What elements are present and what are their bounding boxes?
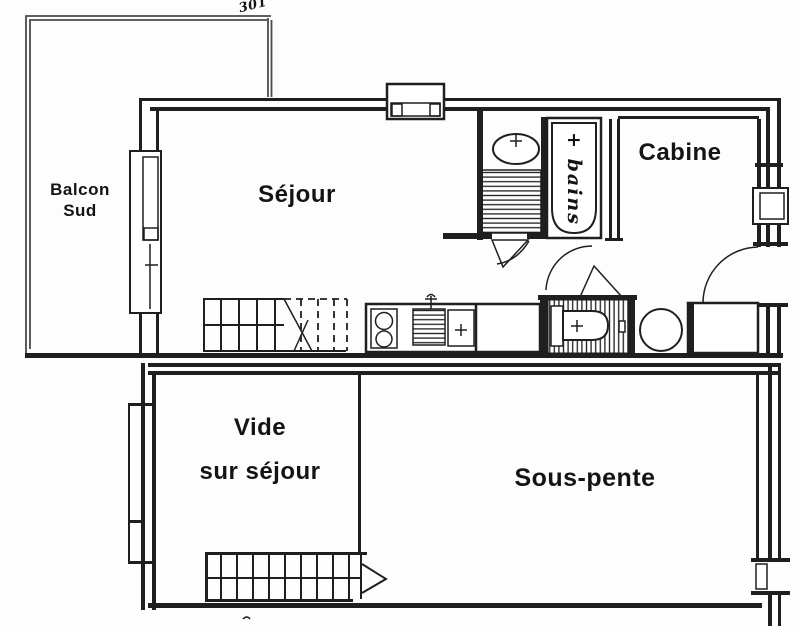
shower-hatch bbox=[482, 170, 541, 233]
void-label: Vide sur séjour bbox=[150, 414, 370, 486]
cabin-window bbox=[753, 188, 788, 224]
sink bbox=[448, 310, 474, 346]
balcony-door-window bbox=[130, 151, 161, 313]
void-label-line2: sur séjour bbox=[150, 458, 370, 486]
cabin-wall bbox=[605, 119, 623, 241]
cabin-door bbox=[546, 246, 622, 297]
wc-area bbox=[538, 295, 637, 355]
balcony-label-line1: Balcon bbox=[28, 179, 132, 200]
balcony-label-line2: Sud bbox=[28, 200, 132, 221]
under-slope-label: Sous-pente bbox=[440, 464, 730, 493]
bath-label: + bains bbox=[553, 124, 595, 234]
toilet bbox=[563, 311, 608, 340]
cabin-label: Cabine bbox=[610, 139, 750, 167]
balcony-label: Balcon Sud bbox=[28, 179, 132, 221]
bathroom-door bbox=[492, 240, 529, 267]
top-window bbox=[387, 84, 444, 119]
washbasin bbox=[493, 134, 539, 164]
living-room-label: Séjour bbox=[222, 181, 372, 209]
lower-stairs bbox=[205, 552, 386, 619]
level-separator bbox=[25, 353, 783, 375]
floor-plan-canvas: Balcon Sud Séjour Cabine + bains Vide su… bbox=[0, 0, 800, 626]
lower-right-window bbox=[751, 558, 790, 595]
entry-door bbox=[703, 242, 788, 307]
void-label-line1: Vide bbox=[150, 414, 370, 442]
side-table-circle bbox=[640, 309, 682, 351]
floor-plan-drawing bbox=[0, 0, 800, 626]
upper-stairs bbox=[203, 299, 347, 351]
stove bbox=[371, 309, 397, 348]
entry-cabinet bbox=[688, 303, 758, 353]
kitchen-drainer-hatch bbox=[413, 309, 445, 345]
